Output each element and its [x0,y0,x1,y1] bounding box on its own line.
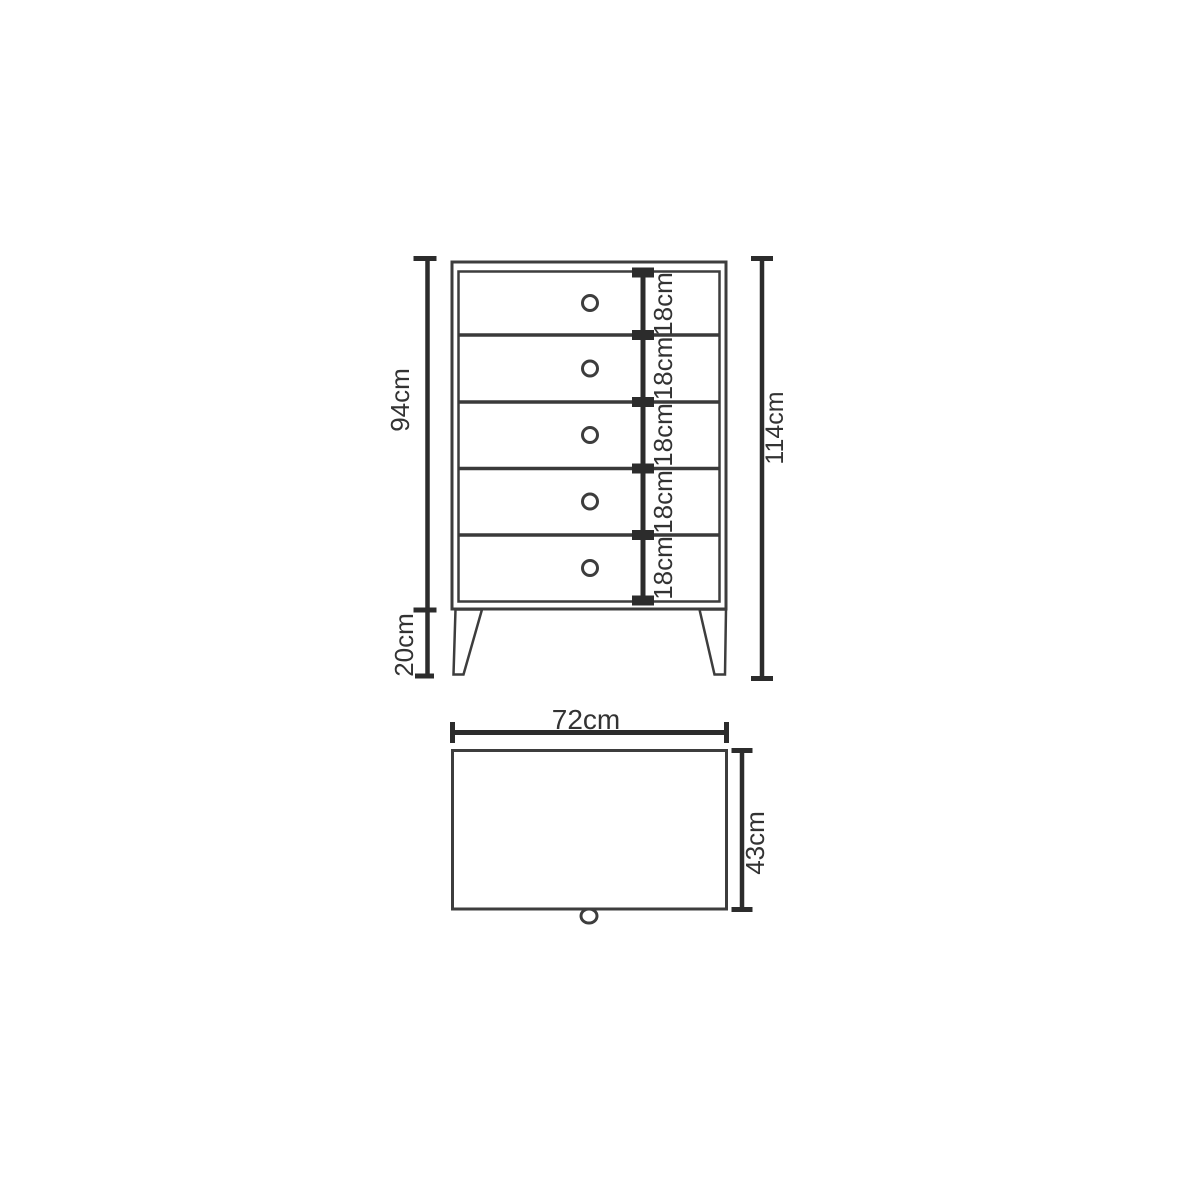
drawer-knob-icon [583,361,598,376]
dimension-tick [751,676,773,681]
dimension-tick [414,256,437,261]
drawer-knob-icon [583,428,598,443]
dimension-total-height: 114cm [751,256,789,681]
dimension-tick [732,907,753,912]
drawer-knob-icon [583,561,598,576]
dimension-tick [450,722,455,743]
dimension-tick [414,608,437,613]
dimension-depth: 43cm [732,748,771,912]
drawer-knob-icon [583,494,598,509]
drawer-height-label: 18cm [648,403,678,467]
dimension-leg-height: 20cm [389,610,434,679]
drawer-height-label: 18cm [648,337,678,401]
drawer-knob-icon [581,909,597,923]
dimension-tick [751,256,773,261]
furniture-dimension-diagram: 18cm 18cm 18cm 18cm 18cm 94cm 20cm 114cm [0,0,1200,1200]
top-view-outline [453,751,727,910]
drawer-knob-icon [583,296,598,311]
drawer-height-label: 18cm [648,536,678,600]
dimension-tick [732,748,753,753]
front-view [452,262,726,675]
width-label: 72cm [552,704,620,735]
cabinet-right-leg [700,610,727,675]
total-height-label: 114cm [761,391,789,464]
dimension-width: 72cm [450,704,729,743]
dimension-drawing-page: 18cm 18cm 18cm 18cm 18cm 94cm 20cm 114cm [0,0,1200,1200]
cabinet-left-leg [454,610,483,675]
leg-height-label: 20cm [389,613,419,677]
top-view [453,751,727,924]
drawer-height-label: 18cm [648,470,678,534]
dimension-body-height: 94cm [385,256,437,613]
drawer-height-label: 18cm [648,272,678,336]
body-height-label: 94cm [385,368,415,432]
depth-label: 43cm [740,811,770,875]
dimension-tick [724,722,729,743]
